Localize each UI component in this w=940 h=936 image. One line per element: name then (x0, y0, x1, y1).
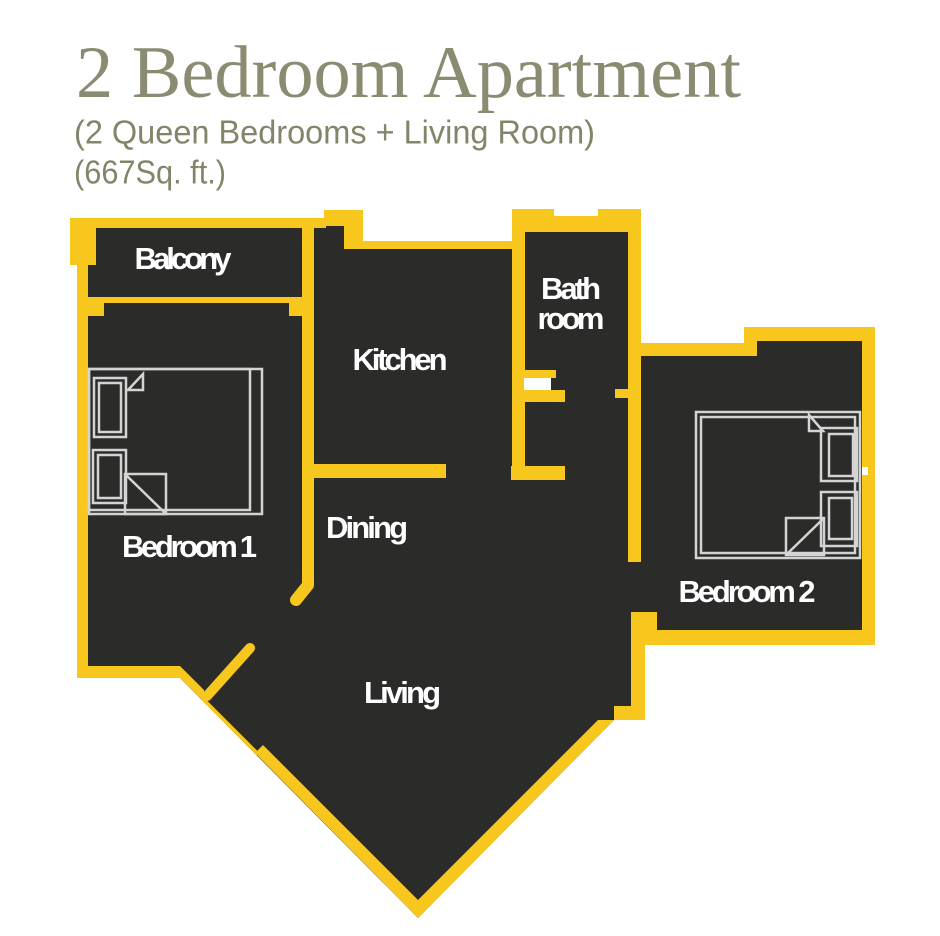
svg-text:(2 Queen Bedrooms + Living Roo: (2 Queen Bedrooms + Living Room) (74, 114, 595, 151)
svg-text:Bedroom 1: Bedroom 1 (122, 529, 257, 564)
svg-text:(667Sq. ft.): (667Sq. ft.) (74, 154, 226, 191)
svg-text:2 Bedroom Apartment: 2 Bedroom Apartment (76, 32, 741, 114)
svg-text:Dining: Dining (326, 510, 408, 545)
svg-text:Living: Living (364, 675, 441, 710)
svg-text:Balcony: Balcony (135, 241, 233, 276)
svg-text:Kitchen: Kitchen (353, 342, 448, 377)
svg-text:room: room (538, 301, 605, 336)
svg-text:Bedroom 2: Bedroom 2 (679, 574, 816, 609)
